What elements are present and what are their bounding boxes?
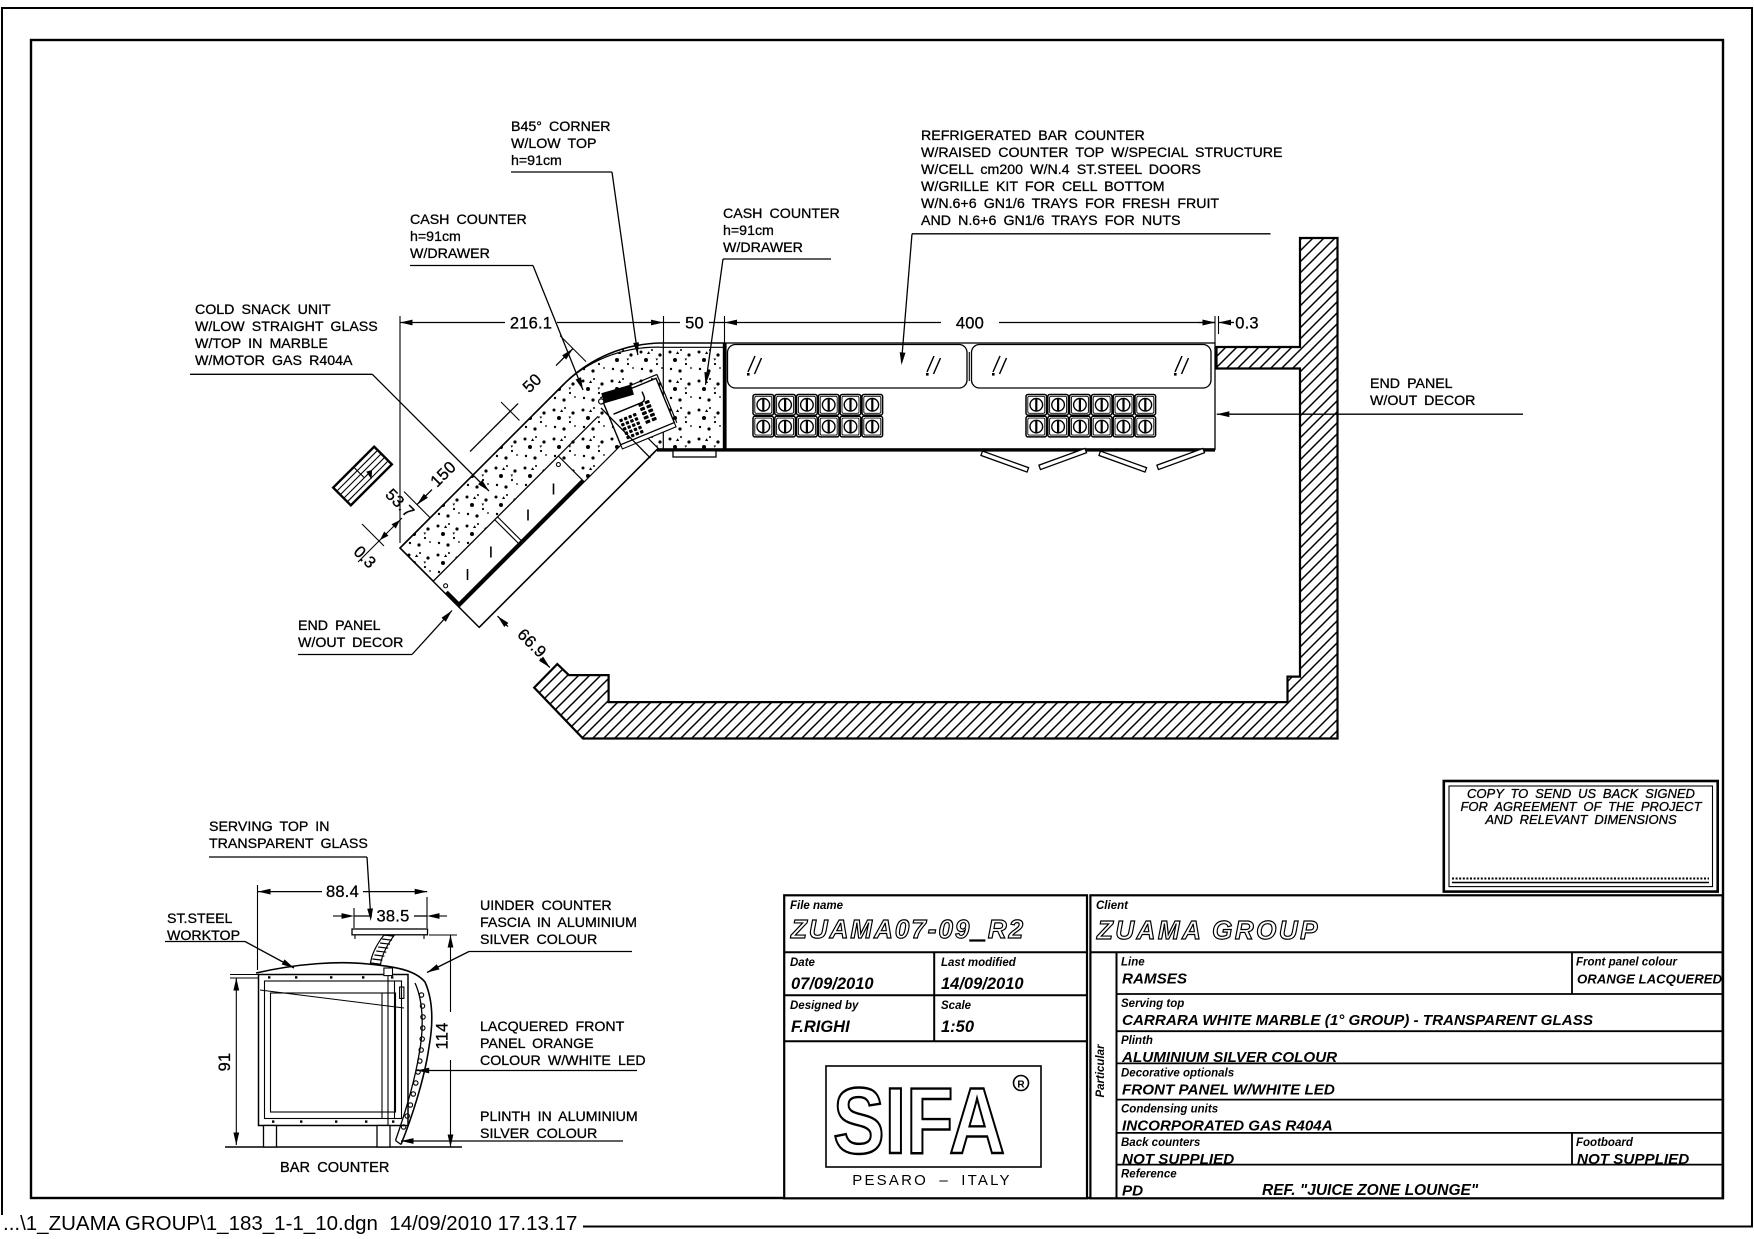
svg-text:ALUMINIUM SILVER COLOUR: ALUMINIUM SILVER COLOUR (1121, 1049, 1337, 1066)
svg-text:W/MOTOR GAS R404A: W/MOTOR GAS R404A (195, 353, 353, 369)
svg-text:AND RELEVANT DIMENSIONS: AND RELEVANT DIMENSIONS (1484, 812, 1677, 827)
svg-text:W/GRILLE KIT FOR CELL BOTTOM: W/GRILLE KIT FOR CELL BOTTOM (921, 179, 1165, 195)
svg-text:SILVER COLOUR: SILVER COLOUR (480, 932, 597, 948)
svg-text:RAMSES: RAMSES (1122, 970, 1187, 987)
svg-text:TRANSPARENT GLASS: TRANSPARENT GLASS (209, 836, 368, 852)
svg-text:File name: File name (790, 900, 844, 912)
svg-text:1:50: 1:50 (941, 1018, 975, 1036)
svg-text:h=91cm: h=91cm (511, 153, 562, 169)
svg-text:REFRIGERATED BAR COUNTER: REFRIGERATED BAR COUNTER (921, 128, 1145, 144)
svg-text:CARRARA WHITE MARBLE (1° GROUP: CARRARA WHITE MARBLE (1° GROUP) - TRANSP… (1122, 1012, 1593, 1029)
svg-text:PD: PD (1122, 1183, 1143, 1200)
svg-text:ORANGE LACQUERED: ORANGE LACQUERED (1577, 971, 1723, 986)
svg-text:Client: Client (1096, 900, 1129, 912)
svg-text:NOT SUPPLIED: NOT SUPPLIED (1122, 1151, 1234, 1168)
svg-text:W/RAISED COUNTER TOP W/SPECIAL: W/RAISED COUNTER TOP W/SPECIAL STRUCTURE (921, 145, 1283, 161)
svg-text:Designed by: Designed by (790, 1000, 859, 1012)
svg-text:Scale: Scale (941, 1000, 972, 1012)
svg-text:h=91cm: h=91cm (410, 229, 461, 245)
svg-text:W/DRAWER: W/DRAWER (723, 240, 803, 256)
svg-text:REF. "JUICE ZONE LOUNGE": REF. "JUICE ZONE LOUNGE" (1262, 1182, 1479, 1199)
svg-text:SIFA: SIFA (833, 1068, 1005, 1173)
svg-text:AND N.6+6 GN1/6 TRAYS FOR NUTS: AND N.6+6 GN1/6 TRAYS FOR NUTS (921, 213, 1180, 229)
svg-text:COLOUR W/WHITE LED: COLOUR W/WHITE LED (480, 1053, 646, 1069)
svg-text:Plinth: Plinth (1121, 1035, 1153, 1047)
svg-text:FRONT PANEL W/WHITE LED: FRONT PANEL W/WHITE LED (1122, 1081, 1335, 1098)
svg-text:Serving top: Serving top (1121, 998, 1184, 1010)
svg-text:Footboard: Footboard (1576, 1137, 1634, 1149)
svg-text:LACQUERED FRONT: LACQUERED FRONT (480, 1019, 625, 1035)
svg-text:Last modified: Last modified (941, 957, 1017, 969)
svg-text:Decorative optionals: Decorative optionals (1121, 1067, 1234, 1079)
svg-text:END PANEL: END PANEL (298, 618, 381, 634)
svg-text:ST.STEEL: ST.STEEL (167, 911, 233, 927)
svg-text:Line: Line (1121, 956, 1145, 968)
svg-text:R: R (1017, 1080, 1025, 1091)
svg-text:W/DRAWER: W/DRAWER (410, 246, 490, 262)
svg-text:F.RIGHI: F.RIGHI (791, 1018, 850, 1036)
svg-text:SERVING TOP IN: SERVING TOP IN (209, 819, 329, 835)
svg-text:PESARO – ITALY: PESARO – ITALY (852, 1172, 1011, 1189)
svg-text:W/OUT DECOR: W/OUT DECOR (1370, 393, 1475, 409)
svg-text:W/N.6+6 GN1/6 TRAYS FOR FRESH: W/N.6+6 GN1/6 TRAYS FOR FRESH FRUIT (921, 196, 1219, 212)
svg-text:PLINTH IN ALUMINIUM: PLINTH IN ALUMINIUM (480, 1109, 638, 1125)
svg-text:INCORPORATED GAS R404A: INCORPORATED GAS R404A (1122, 1118, 1333, 1135)
svg-text:COLD SNACK UNIT: COLD SNACK UNIT (195, 302, 331, 318)
svg-text:38.5: 38.5 (377, 908, 410, 926)
svg-text:Date: Date (790, 957, 816, 969)
svg-text:END PANEL: END PANEL (1370, 376, 1453, 392)
svg-text:ZUAMA07-09_R2: ZUAMA07-09_R2 (790, 914, 1025, 944)
svg-text:88.4: 88.4 (326, 883, 359, 901)
svg-text:400: 400 (956, 315, 984, 333)
svg-text:FASCIA IN ALUMINIUM: FASCIA IN ALUMINIUM (480, 915, 637, 931)
svg-text:UINDER COUNTER: UINDER COUNTER (480, 898, 612, 914)
svg-text:CASH COUNTER: CASH COUNTER (723, 206, 840, 222)
svg-text:B45° CORNER: B45° CORNER (511, 119, 611, 135)
svg-text:ZUAMA GROUP: ZUAMA GROUP (1096, 915, 1320, 945)
svg-text:0.3: 0.3 (1235, 315, 1259, 333)
svg-text:50: 50 (685, 315, 704, 333)
svg-text:h=91cm: h=91cm (723, 223, 774, 239)
svg-text:Condensing units: Condensing units (1121, 1104, 1218, 1116)
svg-text:07/09/2010: 07/09/2010 (791, 975, 874, 993)
svg-text:SILVER COLOUR: SILVER COLOUR (480, 1126, 597, 1142)
svg-text:BAR COUNTER: BAR COUNTER (280, 1160, 389, 1176)
svg-text:216.1: 216.1 (510, 315, 552, 333)
svg-text:114: 114 (434, 1023, 452, 1050)
svg-text:PANEL ORANGE: PANEL ORANGE (480, 1036, 594, 1052)
svg-text:W/LOW TOP: W/LOW TOP (511, 136, 596, 152)
svg-text:W/CELL cm200 W/N.4 ST.STEEL DO: W/CELL cm200 W/N.4 ST.STEEL DOORS (921, 162, 1201, 178)
svg-text:Particular: Particular (1095, 1044, 1107, 1098)
svg-text:Back counters: Back counters (1121, 1137, 1200, 1149)
svg-text:...\1_ZUAMA GROUP\1_183_1-1_10: ...\1_ZUAMA GROUP\1_183_1-1_10.dgn 14/09… (3, 1212, 577, 1235)
svg-text:W/LOW STRAIGHT GLASS: W/LOW STRAIGHT GLASS (195, 319, 378, 335)
svg-text:W/OUT DECOR: W/OUT DECOR (298, 635, 403, 651)
svg-text:Reference: Reference (1121, 1169, 1177, 1181)
svg-text:91: 91 (216, 1053, 234, 1072)
svg-text:Front panel colour: Front panel colour (1576, 956, 1677, 968)
svg-text:NOT SUPPLIED: NOT SUPPLIED (1577, 1151, 1689, 1168)
svg-text:14/09/2010: 14/09/2010 (941, 975, 1024, 993)
svg-text:CASH COUNTER: CASH COUNTER (410, 212, 527, 228)
svg-text:W/TOP IN MARBLE: W/TOP IN MARBLE (195, 336, 328, 352)
